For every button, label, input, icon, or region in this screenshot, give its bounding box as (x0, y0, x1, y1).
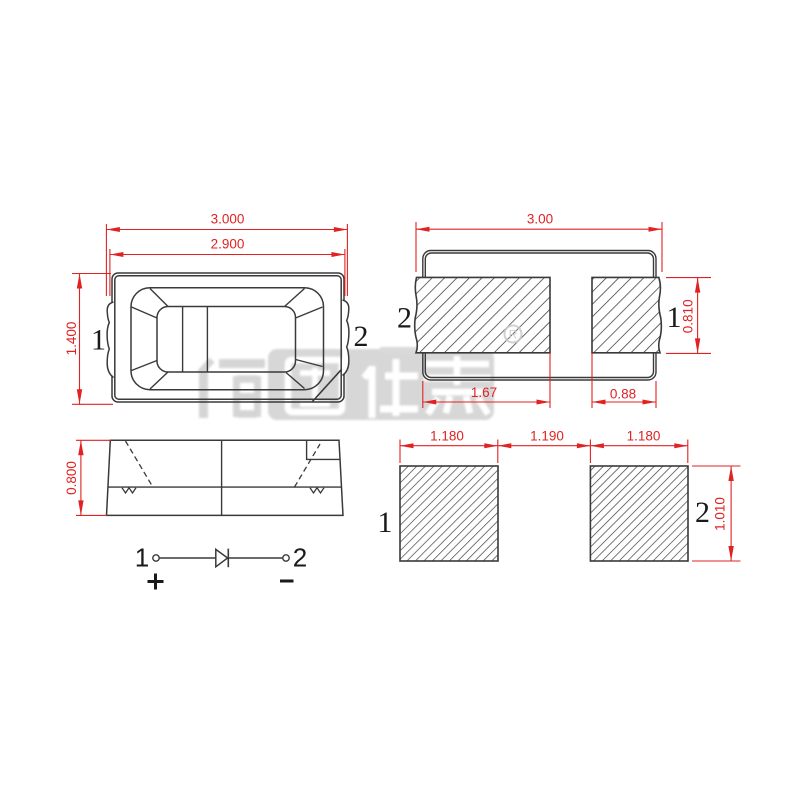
svg-text:1: 1 (91, 324, 106, 357)
svg-text:0.88: 0.88 (610, 387, 636, 402)
svg-text:0.800: 0.800 (64, 461, 79, 495)
svg-text:1.180: 1.180 (627, 429, 661, 444)
svg-text:1: 1 (667, 301, 682, 334)
svg-text:2: 2 (354, 320, 369, 353)
svg-text:1.400: 1.400 (64, 322, 79, 356)
svg-text:1.190: 1.190 (530, 429, 564, 444)
svg-text:R: R (509, 328, 518, 342)
svg-text:3.00: 3.00 (527, 212, 553, 227)
svg-text:2: 2 (695, 496, 710, 529)
svg-text:1.180: 1.180 (430, 429, 464, 444)
svg-text:3.000: 3.000 (211, 212, 245, 227)
svg-text:1.010: 1.010 (713, 497, 728, 531)
svg-text:1.67: 1.67 (471, 385, 497, 400)
svg-text:2: 2 (293, 543, 307, 573)
svg-text:2: 2 (397, 302, 412, 335)
svg-text:1: 1 (378, 506, 393, 539)
svg-text:0.810: 0.810 (681, 299, 696, 333)
svg-text:1: 1 (135, 543, 149, 573)
svg-text:2.900: 2.900 (211, 237, 245, 252)
